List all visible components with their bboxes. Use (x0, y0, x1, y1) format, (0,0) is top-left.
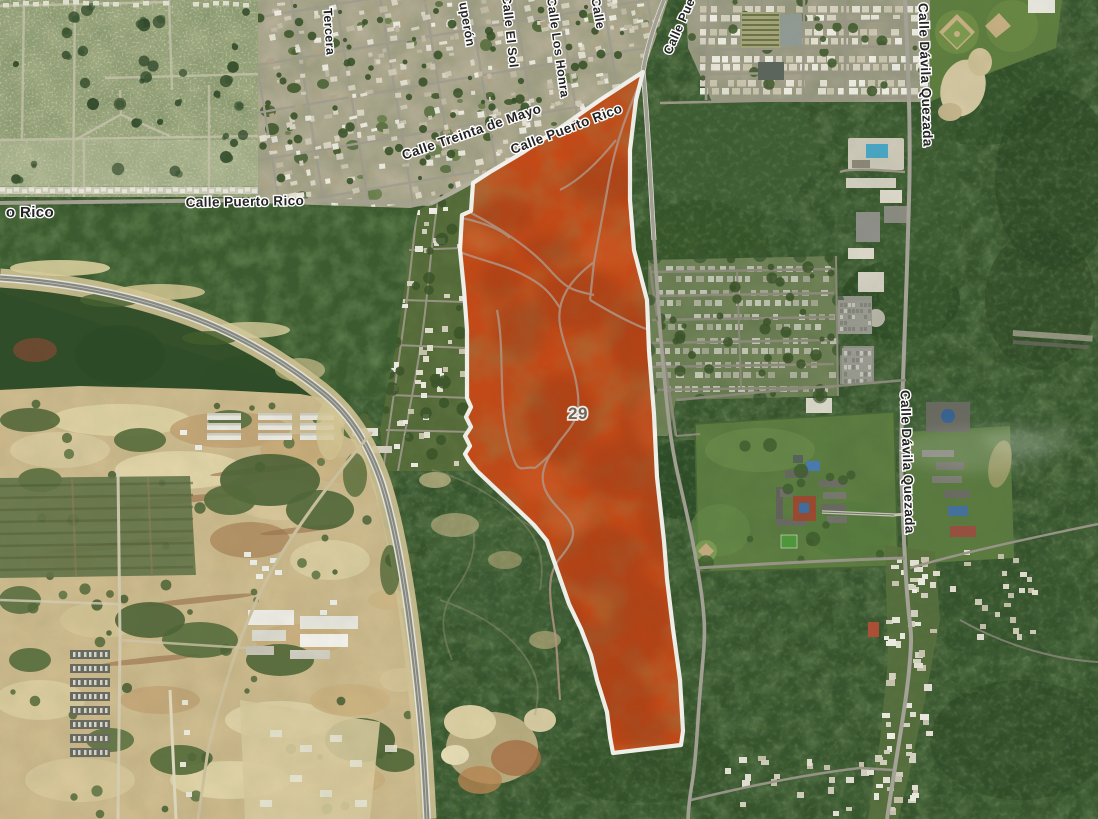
svg-text:o Rico: o Rico (6, 204, 54, 221)
svg-text:Calle Puerto Rico: Calle Puerto Rico (186, 193, 305, 210)
